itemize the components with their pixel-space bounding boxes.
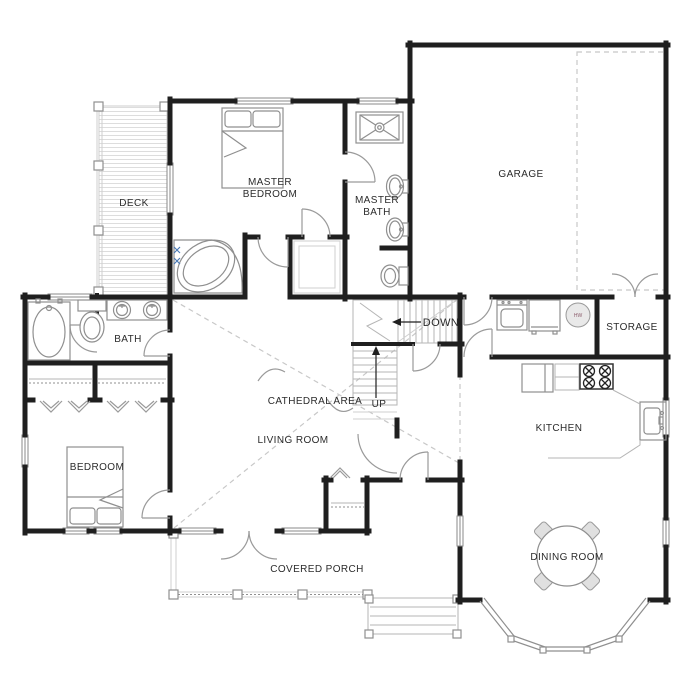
- master-toilet-icon: [381, 265, 408, 287]
- dryer-icon: [529, 300, 560, 334]
- master-bed-icon: [222, 108, 283, 188]
- master-closet-shelves: [294, 241, 340, 293]
- refrigerator-icon: [522, 364, 553, 392]
- stairs-down-label: DOWN: [423, 317, 459, 329]
- floor-plan-page: HW: [0, 0, 700, 700]
- vanity-sinks-icon: [107, 300, 167, 320]
- room-label-kitchen: KITCHEN: [536, 423, 583, 434]
- master-closet-door: [302, 209, 330, 237]
- cathedral-ceiling-lines: [173, 299, 460, 528]
- window: [357, 98, 398, 104]
- stair-break-line: [360, 303, 390, 341]
- covered-porch-area: [169, 529, 461, 638]
- room-label-covered-porch: COVERED PORCH: [270, 564, 364, 575]
- bath-door: [144, 330, 170, 356]
- bifold-door-chevrons: [40, 401, 157, 412]
- window: [22, 435, 28, 467]
- window: [48, 294, 92, 300]
- water-heater-label: HW: [574, 313, 583, 319]
- garage-utility-door: [464, 297, 492, 325]
- bay-window: [480, 598, 650, 653]
- window: [179, 528, 216, 534]
- bed-icon: [67, 447, 123, 527]
- room-label-master-bedroom: BEDROOM: [243, 189, 297, 200]
- shower-icon: [356, 112, 403, 143]
- room-label-bath: BATH: [114, 334, 142, 345]
- master-sink-icon: [387, 218, 409, 241]
- kitchen-utility-door: [464, 329, 492, 357]
- window: [282, 528, 321, 534]
- ceiling-slope-arrow: [258, 369, 285, 381]
- master-bath-door: [345, 152, 375, 182]
- room-label-master-bath: MASTER: [355, 195, 399, 206]
- room-label-master-bedroom: MASTER: [248, 177, 292, 188]
- water-heater-icon: HW: [566, 303, 590, 327]
- cathedral-area-label: CATHEDRAL AREA: [268, 396, 363, 407]
- washer-icon: [497, 300, 527, 330]
- bedroom-door: [142, 490, 170, 518]
- room-label-living-room: LIVING ROOM: [257, 435, 328, 446]
- window: [663, 518, 669, 547]
- stairs-up-label: UP: [372, 399, 387, 410]
- garage-door-bay: [577, 52, 665, 290]
- toilet-icon: [78, 300, 106, 342]
- faucet-icon: [174, 247, 180, 264]
- garage-storage-double-doors: [612, 274, 658, 297]
- stair-bottom-door: [358, 434, 397, 473]
- room-label-storage: STORAGE: [606, 322, 658, 333]
- window: [63, 528, 89, 534]
- room-label-deck: DECK: [119, 198, 148, 209]
- stair-hall-door: [413, 344, 440, 371]
- master-bedroom-door: [258, 237, 288, 267]
- stove-icon: [580, 364, 613, 389]
- porch-french-doors: [221, 531, 277, 559]
- kitchen-sink-icon: [640, 402, 666, 440]
- room-label-dining-room: DINING ROOM: [530, 552, 603, 563]
- dining-living-door: [400, 452, 428, 480]
- window: [235, 98, 293, 104]
- deck-slider-window: [167, 163, 173, 215]
- window: [94, 528, 122, 534]
- room-label-master-bath: BATH: [363, 207, 391, 218]
- floor-plan-canvas: HW: [0, 0, 700, 700]
- kitchen-cabinet: [555, 364, 579, 390]
- room-label-bedroom: BEDROOM: [70, 462, 124, 473]
- dining-porch-window: [457, 516, 463, 546]
- bathtub-icon: [28, 299, 70, 360]
- hall-closet: [330, 468, 364, 507]
- jacuzzi-tub-icon: [167, 229, 244, 302]
- room-label-garage: GARAGE: [498, 169, 543, 180]
- porch-steps: [365, 595, 461, 638]
- garage-area: [577, 52, 665, 290]
